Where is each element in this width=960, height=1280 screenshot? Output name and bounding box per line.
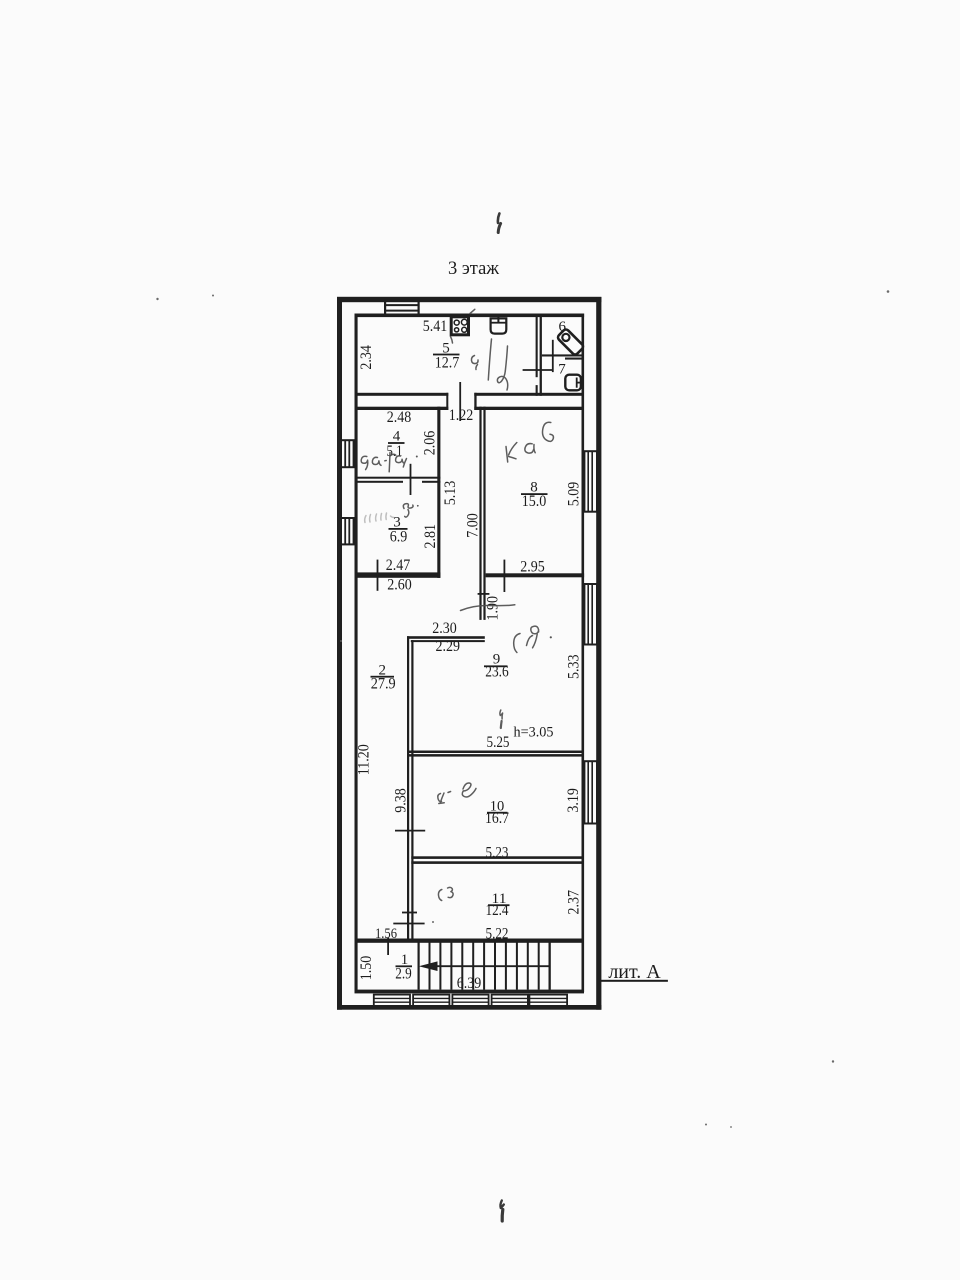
svg-text:16.7: 16.7 — [485, 810, 509, 827]
svg-text:5.22: 5.22 — [486, 926, 509, 943]
svg-text:5.1: 5.1 — [387, 443, 403, 460]
svg-text:2.29: 2.29 — [435, 638, 460, 655]
svg-text:2.60: 2.60 — [387, 577, 412, 594]
svg-text:5.13: 5.13 — [442, 481, 459, 506]
svg-text:2.48: 2.48 — [387, 409, 412, 426]
svg-text:6.39: 6.39 — [457, 975, 482, 992]
svg-text:12.4: 12.4 — [486, 902, 509, 919]
svg-text:2.34: 2.34 — [358, 345, 375, 370]
svg-text:1.50: 1.50 — [358, 956, 375, 981]
svg-text:2.37: 2.37 — [566, 890, 583, 915]
svg-text:3 этаж: 3 этаж — [448, 259, 499, 279]
svg-text:1.90: 1.90 — [484, 596, 501, 621]
svg-text:7: 7 — [558, 362, 566, 378]
svg-text:12.7: 12.7 — [435, 355, 460, 372]
svg-text:5.33: 5.33 — [566, 654, 583, 679]
svg-text:6.9: 6.9 — [390, 529, 408, 546]
svg-text:5.41: 5.41 — [423, 318, 448, 335]
svg-text:лит. А: лит. А — [608, 961, 661, 983]
svg-text:3.19: 3.19 — [565, 788, 582, 813]
svg-text:23.6: 23.6 — [485, 664, 509, 681]
svg-text:h=3.05: h=3.05 — [514, 725, 554, 741]
svg-text:7.00: 7.00 — [465, 513, 482, 538]
svg-text:27.9: 27.9 — [371, 676, 396, 693]
svg-text:2.06: 2.06 — [422, 431, 439, 456]
svg-text:2.81: 2.81 — [422, 524, 439, 549]
svg-text:1.56: 1.56 — [375, 926, 397, 942]
svg-text:5.09: 5.09 — [566, 482, 583, 507]
svg-text:5.25: 5.25 — [487, 734, 510, 751]
svg-text:2.47: 2.47 — [386, 557, 411, 574]
svg-text:11.20: 11.20 — [356, 744, 373, 775]
svg-text:2.30: 2.30 — [432, 620, 457, 637]
svg-text:15.0: 15.0 — [522, 493, 547, 510]
svg-text:9.38: 9.38 — [392, 788, 409, 813]
svg-text:2.95: 2.95 — [520, 559, 545, 576]
svg-text:5.23: 5.23 — [486, 845, 509, 862]
svg-text:2.9: 2.9 — [395, 966, 412, 983]
